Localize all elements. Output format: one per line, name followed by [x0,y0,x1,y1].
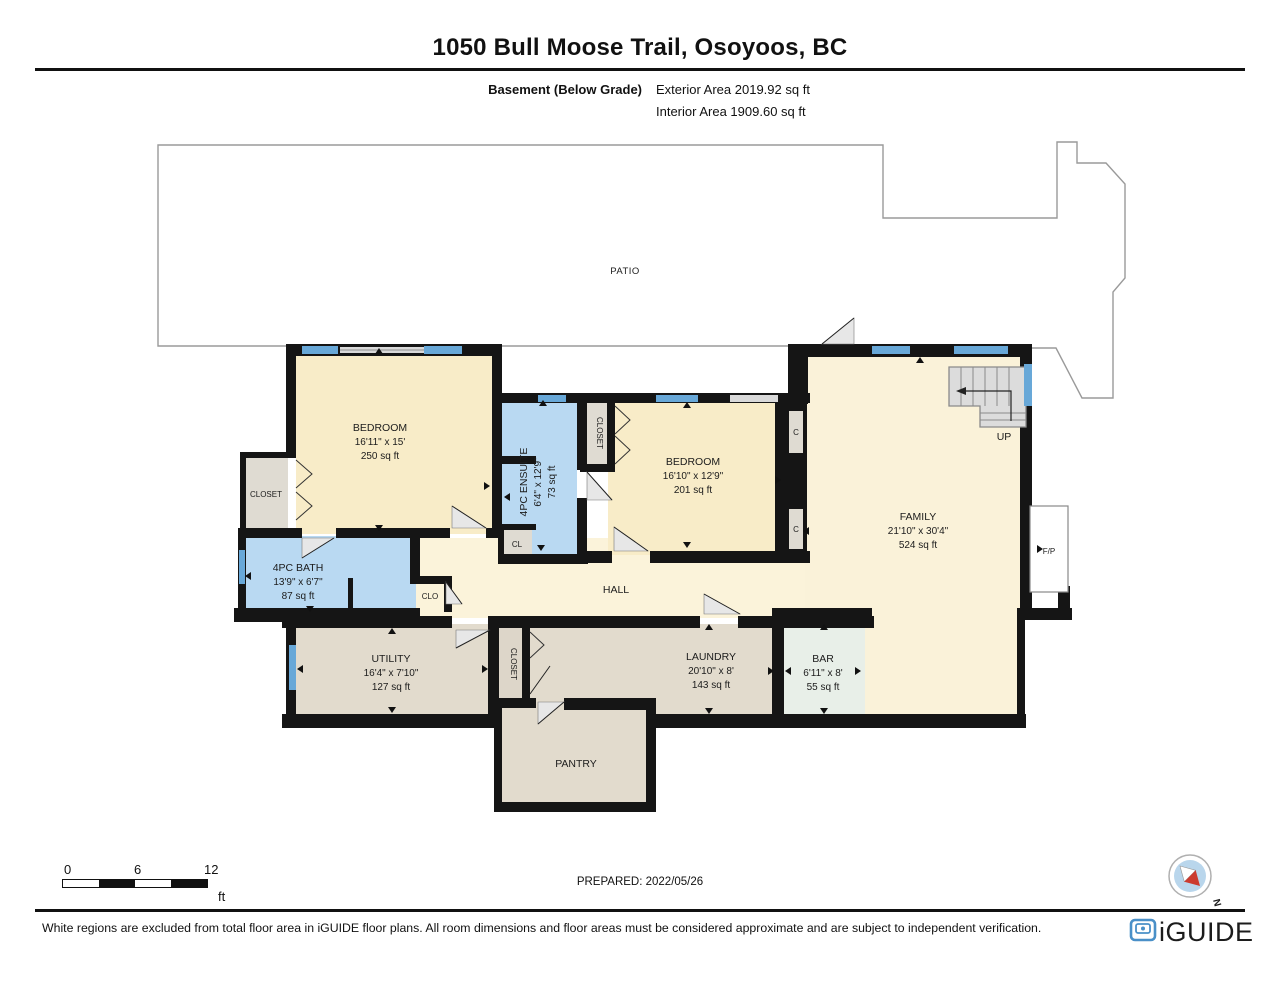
room-area: 55 sq ft [807,682,840,693]
room-area: 127 sq ft [372,682,411,693]
compass: N [1160,850,1232,912]
closet-label: CLOSET [250,490,282,499]
lintel [730,395,778,402]
closet-label: CLOSET [595,417,604,449]
exterior-area: Exterior Area 2019.92 sq ft [656,82,810,97]
window [656,395,698,402]
room-label: 4PC BATH [273,562,324,574]
room-label: FAMILY [900,511,937,523]
room-dims: 6'4" x 12'9" [533,457,544,507]
hall-label: HALL [603,584,629,596]
window [239,550,245,584]
room-area: 73 sq ft [547,465,558,498]
room-area: 524 sq ft [899,540,938,551]
floor-label: Basement (Below Grade) [0,82,642,97]
window [538,395,566,402]
room-dims: 6'11" x 8' [803,668,843,679]
room-label: UTILITY [371,653,410,665]
interior-area: Interior Area 1909.60 sq ft [656,104,806,119]
room-dims: 16'4" x 7'10" [364,668,419,679]
iguide-wordmark: iGUIDE [1159,917,1254,947]
room-label: 4PC ENSUITE [518,448,530,517]
room-dims: 13'9" x 6'7" [273,577,323,588]
room-label: BAR [812,653,834,665]
c-label: C [793,428,799,437]
camera-icon [1131,920,1155,940]
room-dims: 16'10" x 12'9" [663,471,724,482]
window [424,346,462,354]
room-area: 143 sq ft [692,680,731,691]
room-dims: 21'10" x 30'4" [888,526,949,537]
room-area: 201 sq ft [674,485,713,496]
fp-label: F/P [1043,547,1055,556]
floorplan-drawing: PATIO BEDROOM 16'11" x 15' 250 sq ft 4PC… [0,130,1280,830]
window [872,346,910,354]
room-dims: 16'11" x 15' [355,437,406,448]
page-title: 1050 Bull Moose Trail, Osoyoos, BC [0,34,1280,62]
room-area: 250 sq ft [361,451,400,462]
closet-label: CLOSET [509,648,518,680]
room-pantry-floor [500,702,650,808]
window [954,346,1008,354]
prepared-date: PREPARED: 2022/05/26 [0,876,1280,888]
pantry-label: PANTRY [555,758,597,770]
c-label: C [793,525,799,534]
scale-tick: 0 [64,862,71,877]
compass-north-label: N [1210,898,1222,908]
iguide-logo: iGUIDE [1128,913,1258,947]
room-label: LAUNDRY [686,651,736,663]
footer-divider [35,909,1245,912]
floorplan-page: 1050 Bull Moose Trail, Osoyoos, BC Basem… [0,0,1280,983]
room-dims: 20'10" x 8' [688,666,734,677]
cl-label: CL [512,540,523,549]
window [302,346,338,354]
clo-label: CLO [422,592,438,601]
room-label: BEDROOM [353,422,407,434]
room-bath-floor [244,536,416,610]
room-area: 87 sq ft [282,591,315,602]
scale-tick: 6 [134,862,141,877]
patio-label: PATIO [610,266,640,277]
window [1024,364,1032,406]
header-divider [35,68,1245,71]
up-label: UP [997,431,1012,443]
window [289,645,296,690]
room-label: BEDROOM [666,456,720,468]
disclaimer-text: White regions are excluded from total fl… [42,921,1041,935]
scale-tick: 12 [204,862,218,877]
scale-unit: ft [218,889,225,904]
